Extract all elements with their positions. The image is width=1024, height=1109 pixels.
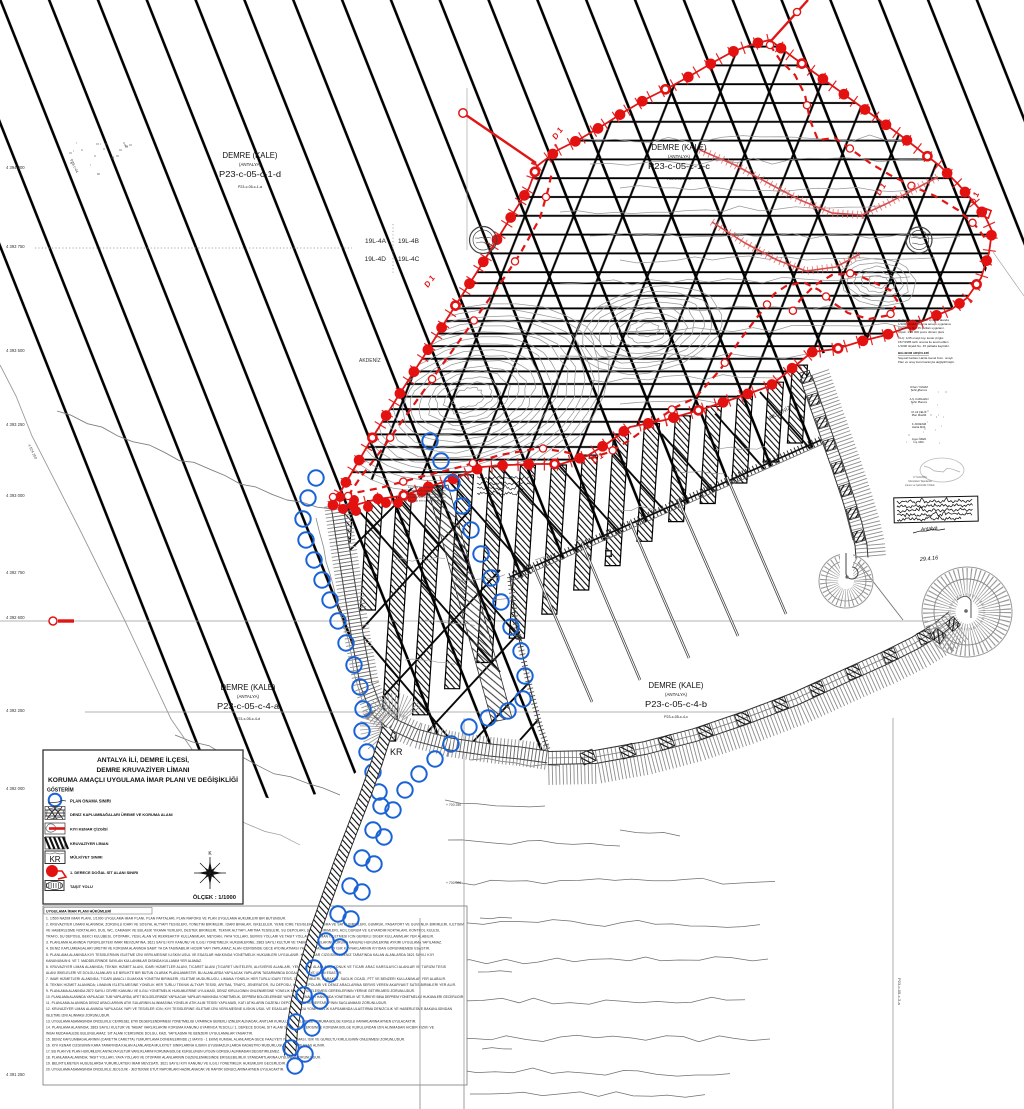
svg-text:4 393 250: 4 393 250	[6, 422, 25, 427]
svg-text:P23-c-05-c-4-c: P23-c-05-c-4-c	[664, 715, 688, 719]
svg-text:19. BELIRTILMEYEN HUSUSLARDA Y: 19. BELIRTILMEYEN HUSUSLARDA YURURLUKTEK…	[46, 1062, 286, 1066]
svg-text:PLAN ONAMA SINIRI: PLAN ONAMA SINIRI	[70, 799, 111, 804]
svg-text:11. PLANLAMA ALANINDA DENIZ AR: 11. PLANLAMA ALANINDA DENIZ ARACLARININ …	[46, 1001, 387, 1005]
svg-text:P23-c-05-c-1-b: P23-c-05-c-1-b	[667, 177, 691, 181]
svg-text:8. TEKNIK HIZMET ALANINDA; LIM: 8. TEKNIK HIZMET ALANINDA; LIMANIN ISLET…	[46, 983, 456, 987]
svg-text:KORUMA AMAÇLI UYGULAMA İMAR PL: KORUMA AMAÇLI UYGULAMA İMAR PLANI VE DEĞ…	[48, 776, 238, 784]
svg-text:DENİZ KAPLUMBAĞALARI ÜREME VE: DENİZ KAPLUMBAĞALARI ÜREME VE KORUMA ALA…	[70, 812, 173, 817]
svg-text:DEMRE (KALE): DEMRE (KALE)	[652, 142, 707, 152]
svg-text:Memleket Tapulama: Memleket Tapulama	[908, 479, 932, 483]
svg-text:UYGULAMA İMAR PLANI HÜKÜMLERİ: UYGULAMA İMAR PLANI HÜKÜMLERİ	[46, 909, 111, 914]
svg-text:4 392 250: 4 392 250	[6, 708, 25, 713]
svg-text:P23-c-05-c-4-a: P23-c-05-c-4-a	[217, 701, 279, 711]
svg-text:18. PLANLAMA ALANINDA; TASIT Y: 18. PLANLAMA ALANINDA; TASIT YOLLARI, YA…	[46, 1056, 321, 1060]
svg-text:P23-c-05-c-3-a: P23-c-05-c-3-a	[897, 978, 902, 1005]
svg-text:ISLETME IZNI ALINMASI ZORUNLUD: ISLETME IZNI ALINMASI ZORUNLUDUR.	[46, 1013, 110, 1017]
svg-text:14. PLANLAMA ALANINDA; 2863 SA: 14. PLANLAMA ALANINDA; 2863 SAYILI KULTU…	[46, 1025, 435, 1029]
svg-text:TRAFO, SU DEPOSU, BEKCI KULUBE: TRAFO, SU DEPOSU, BEKCI KULUBESI, OTOPAR…	[46, 935, 434, 939]
svg-text:KR: KR	[49, 855, 60, 864]
svg-text:4 393 500: 4 393 500	[6, 348, 25, 353]
svg-text:KANUNUNUN 6. VE 7. MADDELERIND: KANUNUNUN 6. VE 7. MADDELERINDE SAYILAN …	[46, 959, 202, 963]
svg-text:DEMRE (KALE): DEMRE (KALE)	[649, 680, 704, 690]
svg-text:5. PLANLAMA ALANINDA KIYI TESI: 5. PLANLAMA ALANINDA KIYI TESISLERININ I…	[46, 953, 434, 957]
svg-text:DEMRE (KALE): DEMRE (KALE)	[221, 682, 276, 692]
svg-text:P23-c-05-c-4-d: P23-c-05-c-4-d	[236, 717, 260, 721]
svg-text:4 393 750: 4 393 750	[6, 244, 25, 249]
svg-text:1. DERECE DOĞAL SİT ALANI SINI: 1. DERECE DOĞAL SİT ALANI SINIRI	[70, 870, 138, 875]
svg-text:4 394 000: 4 394 000	[6, 165, 25, 170]
svg-text:6. KRUVAZIYER LIMAN ALANINDA;: 6. KRUVAZIYER LIMAN ALANINDA; TEKNIK HIZ…	[46, 965, 447, 969]
svg-text:19L-4C: 19L-4C	[398, 256, 420, 263]
svg-text:DEMRE (KALE): DEMRE (KALE)	[223, 150, 278, 160]
svg-text:ANTALYA İLİ, DEMRE İLÇESİ,: ANTALYA İLİ, DEMRE İLÇESİ,	[97, 757, 189, 764]
svg-text:P23-c-05-c-1-c: P23-c-05-c-1-c	[648, 161, 711, 171]
svg-text:AKDENİZ: AKDENİZ	[359, 357, 381, 364]
svg-text:Şehir Plancısı: Şehir Plancısı	[911, 400, 928, 404]
svg-text:10. PLANLAMA ALANINDA YAPILACA: 10. PLANLAMA ALANINDA YAPILACAK TUM YAPI…	[46, 995, 464, 999]
svg-text:kıyı dolgu sınır çizgisi onama: kıyı dolgu sınır çizgisi onama kararı	[408, 500, 446, 503]
svg-text:1. 1/500 NAZIM IMAR PLANI, 1/1: 1. 1/500 NAZIM IMAR PLANI, 1/1000 UYGULA…	[46, 917, 286, 921]
svg-text:12. KRUVAZIYER LIMAN ALANINDA: 12. KRUVAZIYER LIMAN ALANINDA YAPILACAK …	[46, 1007, 453, 1011]
svg-text:Ölçek: 1/25 000 çevre düzeni p: Ölçek: 1/25 000 çevre düzeni planı	[898, 330, 944, 334]
svg-text:KR: KR	[390, 747, 403, 757]
svg-text:+ 700 250: + 700 250	[446, 803, 461, 807]
svg-text:2. KRUVAZIYER LIMANI ALANINDA;: 2. KRUVAZIYER LIMANI ALANINDA; ZORUNLU I…	[46, 923, 464, 927]
svg-text:19L-4B: 19L-4B	[398, 238, 419, 245]
svg-text:DEMRE KRUVAZİYER LİMANI: DEMRE KRUVAZİYER LİMANI	[97, 767, 190, 774]
svg-text:20. UYGULAMA ASAMASINDA ONCELI: 20. UYGULAMA ASAMASINDA ONCELIKLE JEOLOJ…	[46, 1068, 284, 1072]
svg-text:+ 700 000: + 700 000	[446, 881, 461, 885]
svg-text:(ANTALYA): (ANTALYA)	[668, 154, 690, 159]
svg-text:ÖLÇEK : 1/1000: ÖLÇEK : 1/1000	[193, 894, 236, 901]
svg-text:1/1000 ölçekli No. 45 paftada: 1/1000 ölçekli No. 45 paftada kayıtlıdır…	[898, 344, 950, 348]
svg-text:7. IMAR HIZMETLERI ALANINDA; T: 7. IMAR HIZMETLERI ALANINDA; TICARI AMAC…	[46, 977, 446, 981]
svg-text:15. DENIZ KAPLUMBAGALARININ (C: 15. DENIZ KAPLUMBAGALARININ (CARETTA CAR…	[46, 1038, 405, 1042]
svg-text:(ANTALYA): (ANTALYA)	[239, 162, 261, 167]
svg-text:GÖSTERİM: GÖSTERİM	[47, 787, 74, 794]
svg-text:4 392 750: 4 392 750	[6, 570, 25, 575]
svg-text:3. PLANLAMA ALANINDA YURURLUKT: 3. PLANLAMA ALANINDA YURURLUKTEKI IMAR M…	[46, 941, 442, 945]
svg-text:(ANTALYA): (ANTALYA)	[237, 694, 259, 699]
svg-text:P23-c-05-c-1-d: P23-c-05-c-1-d	[219, 169, 281, 179]
svg-text:P23-c-05-c-4-b: P23-c-05-c-4-b	[645, 699, 707, 709]
svg-text:BGL/BOM ARŞİVLERİ: BGL/BOM ARŞİVLERİ	[898, 350, 929, 355]
svg-text:INSAI MUDAHALEDE BULUNULAMAZ.: INSAI MUDAHALEDE BULUNULAMAZ. SIT ALANI …	[46, 1031, 253, 1035]
svg-text:KIYI KENAR ÇİZGİSİ: KIYI KENAR ÇİZGİSİ	[70, 827, 108, 832]
svg-text:4 393 000: 4 393 000	[6, 493, 25, 498]
svg-text:19L-4A: 19L-4A	[365, 238, 387, 245]
svg-text:VE HABERLESME NOKTALARI, DUS,: VE HABERLESME NOKTALARI, DUS, WC, CAMASI…	[46, 929, 440, 933]
svg-text:19L-4D: 19L-4D	[365, 256, 387, 263]
svg-text:MÜLKİYET SINIRI: MÜLKİYET SINIRI	[70, 855, 102, 860]
svg-text:TAŞIT YOLU: TAŞIT YOLU	[70, 884, 93, 889]
svg-text:17. BU PLAN VE PLAN HUKUMLERI;: 17. BU PLAN VE PLAN HUKUMLERI; ANTALYA K…	[46, 1050, 280, 1054]
svg-text:Plan Müellifi: Plan Müellifi	[912, 413, 927, 417]
svg-text:KRUVAZİYER LİMAN: KRUVAZİYER LİMAN	[70, 841, 109, 846]
svg-text:Şehir Plancısı: Şehir Plancısı	[911, 388, 928, 392]
svg-text:4 392 000: 4 392 000	[6, 786, 25, 791]
svg-text:4. DENIZ KAPLUMBAGALARI URETIM: 4. DENIZ KAPLUMBAGALARI URETIM VE KORUMA…	[46, 947, 430, 951]
svg-text:13. UYGULAMA ASAMASINDA ONCELI: 13. UYGULAMA ASAMASINDA ONCELIKLE CEVRES…	[46, 1019, 416, 1023]
svg-text:P23-c-05-c-1-a: P23-c-05-c-1-a	[238, 185, 262, 189]
svg-text:4 391 250: 4 391 250	[6, 1072, 25, 1077]
svg-text:Plan ve onay kurul kararıyla d: Plan ve onay kurul kararıyla değiştirilm…	[898, 360, 955, 364]
svg-text:4 392 600: 4 392 600	[6, 615, 25, 620]
svg-text:(ANTALYA): (ANTALYA)	[665, 692, 687, 697]
svg-text:9. PLANLAMA ALANINDA 2872 SAYI: 9. PLANLAMA ALANINDA 2872 SAYILI CEVRE K…	[46, 989, 415, 993]
